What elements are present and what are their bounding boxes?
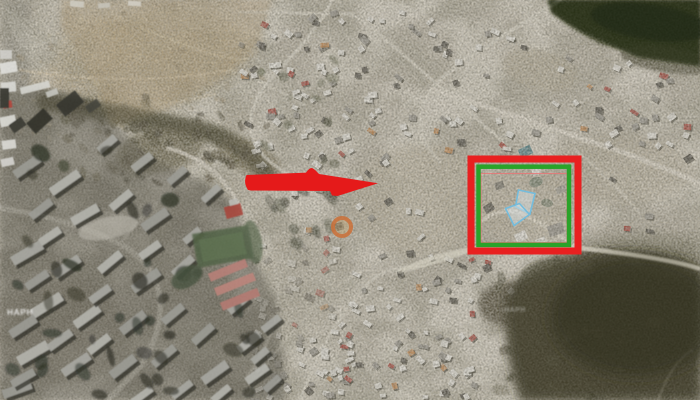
svg-text:НАРН: НАРН <box>7 307 33 317</box>
svg-text:НАРН: НАРН <box>504 307 526 314</box>
